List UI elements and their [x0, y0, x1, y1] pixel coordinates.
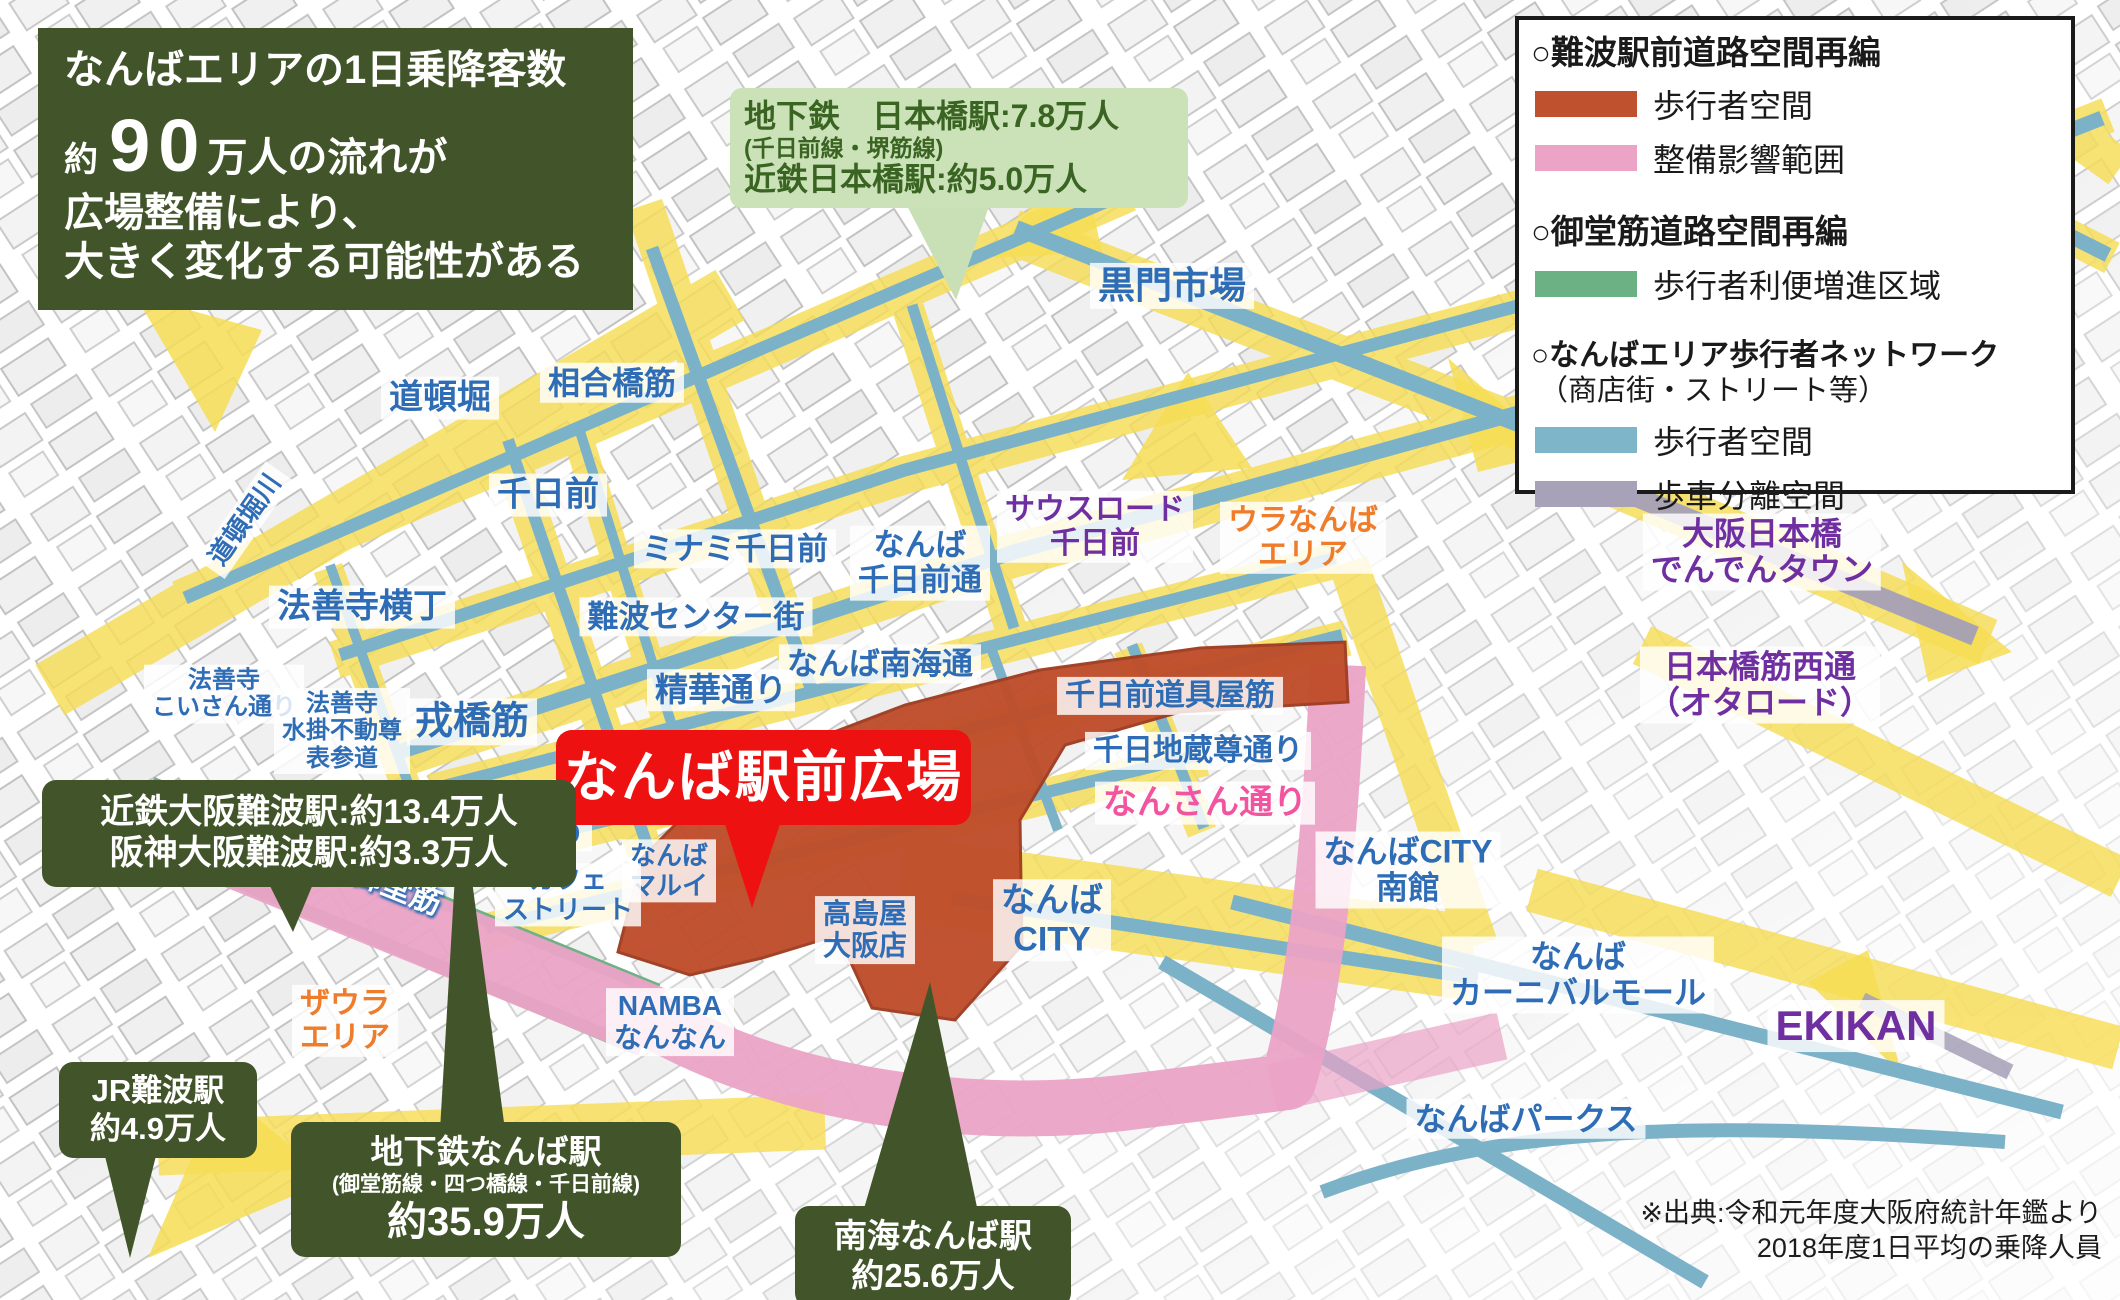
street-label-namba-carnival-mall: なんば カーニバルモール — [1442, 937, 1714, 1014]
street-label-kuromon-ichiba: 黒門市場 — [1090, 263, 1254, 309]
nankai-line-1: 南海なんば駅 — [799, 1216, 1067, 1256]
jr-namba-callout: JR難波駅 約4.9万人 — [59, 1062, 257, 1158]
kintetsu-line-2: 阪神大阪難波駅:約3.3万人 — [48, 833, 570, 874]
legend-item-pedestrian-space-blue: 歩行者空間 — [1535, 417, 2061, 463]
street-label-ebisubashisuji: 戎橋筋 — [407, 698, 537, 745]
nipponbashi-line-1: 地下鉄 日本橋駅:7.8万人 — [744, 98, 1174, 135]
title-line-3: 広場整備により、 — [64, 189, 633, 238]
legend-swatch-pedestrian-space-blue — [1535, 427, 1637, 453]
legend-item-impact-range: 整備影響範囲 — [1535, 135, 2061, 181]
street-label-dotonbori: 道頓堀 — [381, 377, 499, 420]
map-legend: ○難波駅前道路空間再編 歩行者空間 整備影響範囲 ○御堂筋道路空間再編 歩行者利… — [1515, 16, 2075, 494]
street-label-namba-nankai-dori: なんば南海通 — [779, 644, 981, 683]
subway-namba-callout: 地下鉄なんば駅 (御堂筋線・四つ橋線・千日前線) 約35.9万人 — [291, 1122, 681, 1257]
jr-line-2: 約4.9万人 — [63, 1110, 253, 1148]
legend-heading-midosuji: ○御堂筋道路空間再編 — [1531, 211, 2061, 252]
subway-line-1: 地下鉄なんば駅 — [295, 1132, 677, 1172]
legend-swatch-separated-space — [1535, 481, 1637, 507]
area-label-ekikan: EKIKAN — [1767, 1000, 1944, 1052]
subway-line-2: (御堂筋線・四つ橋線・千日前線) — [295, 1172, 677, 1198]
street-label-namba-center-gai: 難波センター街 — [580, 597, 813, 636]
jr-line-1: JR難波駅 — [63, 1072, 253, 1110]
legend-item-separated-space: 歩車分離空間 — [1535, 471, 2061, 517]
kintetsu-hanshin-callout: 近鉄大阪難波駅:約13.4万人 阪神大阪難波駅:約3.3万人 — [42, 780, 576, 887]
legend-heading-namba-ekimae: ○難波駅前道路空間再編 — [1531, 32, 2061, 73]
area-label-ura-namba: ウラなんば エリア — [1220, 502, 1386, 574]
area-label-the-ura-area: ザウラ エリア — [292, 985, 398, 1057]
nankai-namba-callout: 南海なんば駅 約25.6万人 — [795, 1206, 1071, 1300]
legend-swatch-pedestrian-space-red — [1535, 91, 1637, 117]
nipponbashi-line-2: (千日前線・堺筋線) — [744, 135, 1174, 161]
legend-item-pedestrian-space-red: 歩行者空間 — [1535, 81, 2061, 127]
source-note: ※出典:令和元年度大阪府統計年鑑より 2018年度1日平均の乗降人員 — [1542, 1196, 2102, 1266]
nipponbashi-line-3: 近鉄日本橋駅:約5.0万人 — [744, 161, 1174, 198]
street-label-sennichimae: 千日前 — [489, 474, 607, 517]
title-box: なんばエリアの1日乗降客数 約 90万人の流れが 広場整備により、 大きく変化す… — [38, 28, 633, 310]
legend-item-pedestrian-improvement: 歩行者利便増進区域 — [1535, 261, 2061, 307]
title-line-1: なんばエリアの1日乗降客数 — [64, 46, 633, 95]
nankai-line-2: 約25.6万人 — [799, 1256, 1067, 1296]
legend-swatch-pedestrian-improvement — [1535, 271, 1637, 297]
legend-heading-network: ○なんばエリア歩行者ネットワーク — [1531, 337, 2061, 375]
street-label-minami-sennichimae: ミナミ千日前 — [634, 529, 836, 568]
street-label-seika-dori: 精華通り — [647, 669, 795, 711]
plaza-banner: なんば駅前広場 — [556, 730, 971, 825]
street-label-namba-sennichimae-dori: なんば 千日前通 — [850, 526, 990, 601]
street-label-hozenji-mizukake: 法善寺 水掛不動尊 表参道 — [274, 688, 410, 774]
title-line-2: 約 90万人の流れが — [64, 109, 633, 183]
street-label-hozenji-yokocho: 法善寺横丁 — [269, 586, 455, 629]
subway-line-3: 約35.9万人 — [295, 1198, 677, 1247]
street-label-south-road-sennichimae: サウスロード 千日前 — [997, 491, 1193, 563]
legend-swatch-impact-range — [1535, 145, 1637, 171]
street-label-sennichi-jizoson-dori: 千日地蔵尊通り — [1085, 732, 1311, 770]
kintetsu-line-1: 近鉄大阪難波駅:約13.4万人 — [48, 792, 570, 833]
street-label-sennichimae-doguyasuji: 千日前道具屋筋 — [1057, 677, 1283, 715]
building-label-namba-parks: なんばパークス — [1406, 1099, 1645, 1139]
street-label-otaroad: 日本橋筋西通 （オタロード） — [1640, 647, 1880, 724]
street-label-nansan-dori: なんさん通り — [1095, 782, 1315, 825]
building-label-namba-city: なんば CITY — [993, 879, 1111, 961]
building-label-takashimaya: 高島屋 大阪店 — [815, 896, 915, 964]
title-line-4: 大きく変化する可能性がある — [64, 238, 633, 287]
building-label-namba-city-minamikan: なんばCITY 南館 — [1316, 832, 1501, 909]
nipponbashi-station-callout: 地下鉄 日本橋駅:7.8万人 (千日前線・堺筋線) 近鉄日本橋駅:約5.0万人 — [730, 88, 1188, 208]
building-label-namba-nannan: NAMBA なんなん — [606, 988, 734, 1056]
area-label-denden-town: 大阪日本橋 でんでんタウン — [1643, 514, 1881, 591]
legend-subheading-network: （商店街・ストリート等） — [1539, 374, 2061, 409]
street-label-aioibashisuji: 相合橋筋 — [540, 363, 684, 403]
namba-area-map: 道頓堀川 道頓堀 相合橋筋 千日前 ミナミ千日前 なんば 千日前通 サウスロード… — [0, 0, 2120, 1300]
